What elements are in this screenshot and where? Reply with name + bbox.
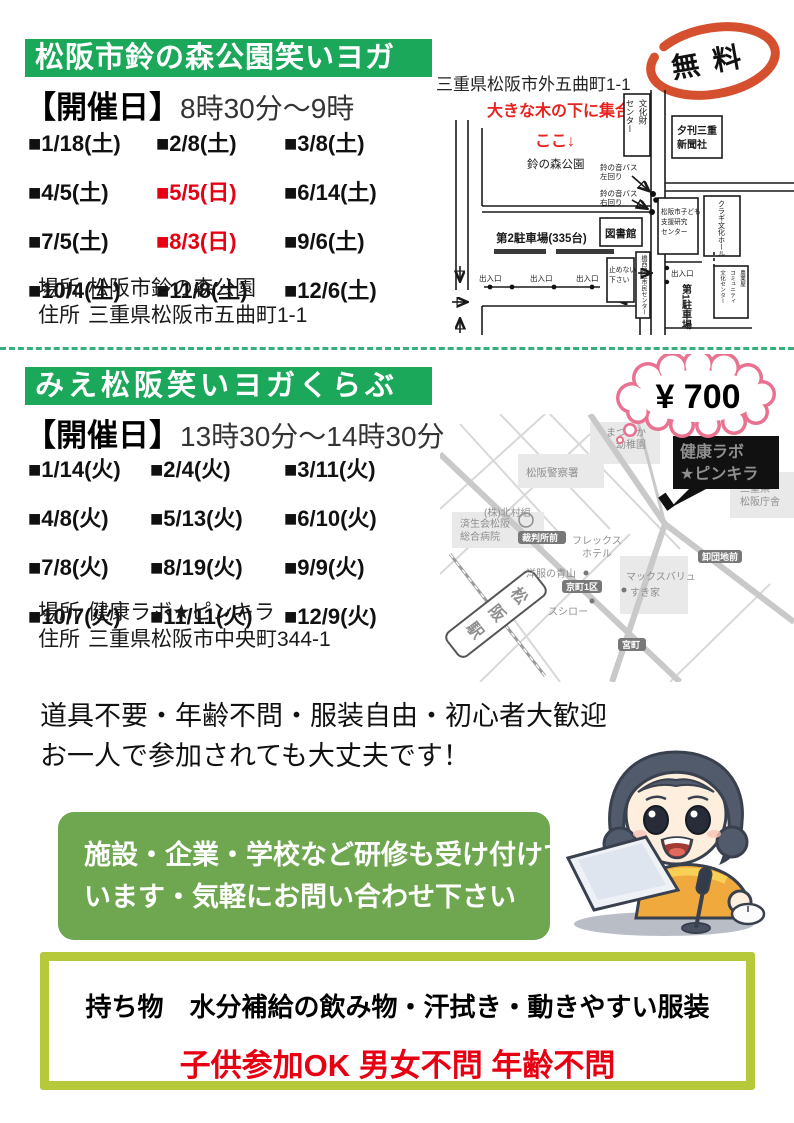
section1-place: 場所松阪市鈴の森公園 bbox=[38, 272, 256, 302]
schedule-label: 【開催日】 bbox=[25, 418, 180, 453]
gate-label: 出入口 bbox=[576, 273, 599, 283]
bus-left-label: 鈴の音バス bbox=[600, 162, 638, 172]
gate-dot bbox=[665, 280, 669, 284]
kodomo-label: センター bbox=[661, 227, 687, 236]
poi-dot bbox=[584, 571, 589, 576]
map1-park-label: 鈴の森公園 bbox=[527, 157, 585, 171]
bus-stop-dot bbox=[653, 197, 659, 203]
section2-schedule: 【開催日】13時30分～14時30分 bbox=[25, 410, 445, 455]
kitamura-label: (株)北村組 bbox=[484, 506, 531, 519]
newspaper-label: 夕刊三重 bbox=[677, 124, 717, 137]
event-date: ■7/5(土) bbox=[28, 224, 156, 256]
address-value: 三重県松阪市五曲町1-1 bbox=[88, 304, 307, 327]
hospital-label: 済生会松阪 bbox=[460, 517, 510, 530]
training-line2: います・気軽にお問い合わせ下さい bbox=[84, 876, 524, 918]
street bbox=[510, 614, 560, 682]
parking-strip bbox=[494, 249, 546, 254]
hotel-label: ホテル bbox=[582, 548, 612, 560]
poi-dot bbox=[590, 599, 595, 604]
fee-bubble: ¥ 700 bbox=[610, 354, 782, 446]
parking1-label: 第1駐車場 bbox=[680, 283, 692, 331]
section1-address: 住所三重県松阪市五曲町1-1 bbox=[38, 299, 307, 329]
map1-parking2-label: 第2駐車場(335台) bbox=[496, 231, 587, 245]
fee-bubble-text: ¥ 700 bbox=[655, 378, 740, 416]
bus-stop-dot bbox=[650, 191, 656, 197]
kodomo-label: 支援研究 bbox=[661, 217, 688, 226]
eye bbox=[644, 806, 668, 834]
event-date: ■1/14(火) bbox=[28, 452, 150, 484]
schedule-time: 13時30分～14時30分 bbox=[180, 421, 445, 452]
address-label: 住所 bbox=[38, 304, 80, 327]
bus-left-arrow bbox=[632, 176, 648, 190]
section2-place: 場所健康ラボ★ピンキラ bbox=[38, 596, 275, 626]
gate-dot bbox=[488, 285, 493, 290]
bring-items: 持ち物 水分補給の飲み物・汗拭き・動きやすい服装 bbox=[49, 987, 746, 1024]
eye bbox=[686, 806, 710, 834]
event-date: ■6/14(土) bbox=[284, 175, 428, 207]
sukiya-label: すき家 bbox=[630, 586, 660, 599]
notes-line2: お一人で参加されても大丈夫です！ bbox=[40, 736, 607, 776]
place-label: 場所 bbox=[38, 277, 80, 300]
bring-box: 持ち物 水分補給の飲み物・汗拭き・動きやすい服装 子供参加OK 男女不問 年齢不… bbox=[40, 952, 755, 1090]
bunkazai-label: センター bbox=[625, 99, 635, 133]
gate-label: 出入口 bbox=[530, 273, 553, 283]
newspaper-box bbox=[672, 116, 722, 158]
busstop-label: 裁判所前 bbox=[522, 532, 558, 543]
hotel-label: フレックス bbox=[572, 535, 622, 547]
hospital-label: 総合病院 bbox=[460, 530, 500, 543]
busstop-label: 卸団地前 bbox=[702, 551, 738, 562]
event-date: ■2/4(火) bbox=[150, 452, 284, 484]
bunkazai-label: 文化財 bbox=[638, 98, 648, 124]
venue-label: ★ピンキラ bbox=[680, 465, 758, 483]
bus-stop-dot bbox=[649, 209, 655, 215]
place-label: 場所 bbox=[38, 601, 80, 624]
section2-address: 住所三重県松阪市中央町344-1 bbox=[38, 623, 331, 653]
police-label: 松阪警察署 bbox=[526, 466, 579, 479]
event-date: ■3/11(火) bbox=[284, 452, 428, 484]
gate-dot bbox=[552, 285, 557, 290]
newspaper-label: 新聞社 bbox=[677, 138, 707, 151]
address-label: 住所 bbox=[38, 628, 80, 651]
sushiro-label: スシロー bbox=[548, 607, 588, 618]
bring-note: 子供参加OK 男女不問 年齢不問 bbox=[49, 1040, 746, 1085]
section1-title: 松阪市鈴の森公園笑いヨガ bbox=[25, 39, 432, 77]
aoyama-label: 洋服の青山 bbox=[526, 567, 576, 580]
schedule-label: 【開催日】 bbox=[25, 90, 180, 125]
event-date: ■9/6(土) bbox=[284, 224, 428, 256]
flyer-page: 松阪市鈴の森公園笑いヨガ 【開催日】8時30分～9時 ■1/18(土)■2/8(… bbox=[0, 0, 794, 1123]
notes-block: 道具不要・年齢不問・服装自由・初心者大歓迎 お一人で参加されても大丈夫です！ bbox=[40, 696, 607, 776]
nogyoya-label: コミュニティ bbox=[729, 270, 736, 304]
poi-dot bbox=[622, 588, 627, 593]
gate-dot bbox=[510, 285, 515, 290]
schedule-time: 8時30分～9時 bbox=[180, 93, 354, 124]
blush bbox=[707, 830, 721, 838]
library-label: 図書館 bbox=[605, 227, 637, 240]
pref-office-label: 松阪庁舎 bbox=[740, 495, 780, 508]
event-date: ■8/19(火) bbox=[150, 550, 284, 582]
place-value: 健康ラボ★ピンキラ bbox=[88, 601, 275, 624]
community-center-label: 橋西地区市民センター bbox=[640, 254, 647, 315]
event-date: ■6/10(火) bbox=[284, 501, 428, 533]
free-badge-text: 無料 bbox=[669, 39, 757, 84]
event-date: ■3/8(土) bbox=[284, 126, 428, 158]
event-date: ■4/5(土) bbox=[28, 175, 156, 207]
map1-meet-line1: 大きな木の下に集合！ bbox=[487, 101, 647, 120]
tongue bbox=[669, 848, 685, 856]
notes-line1: 道具不要・年齢不問・服装自由・初心者大歓迎 bbox=[40, 696, 607, 736]
event-date: ■1/18(土) bbox=[28, 126, 156, 158]
event-date: ■8/3(日) bbox=[156, 224, 284, 256]
bus-right-label: 鈴の音バス bbox=[600, 188, 638, 198]
place-value: 松阪市鈴の森公園 bbox=[88, 277, 256, 300]
event-date: ■5/13(火) bbox=[150, 501, 284, 533]
gate-dot bbox=[590, 285, 595, 290]
event-date: ■2/8(土) bbox=[156, 126, 284, 158]
section-divider bbox=[0, 347, 794, 350]
eye-highlight bbox=[691, 811, 698, 818]
gate-label: 出入口 bbox=[671, 268, 694, 278]
event-date: ■5/5(日) bbox=[156, 175, 284, 207]
address-value: 三重県松阪市中央町344-1 bbox=[88, 628, 331, 651]
gate-label: 出入口 bbox=[479, 273, 502, 283]
venue-pointer bbox=[670, 488, 708, 508]
nogyoya-label: 農業屋 bbox=[739, 269, 746, 288]
kodomo-box bbox=[658, 198, 698, 254]
event-date: ■7/8(火) bbox=[28, 550, 150, 582]
kuragi-label: クラギ文化ホール bbox=[718, 200, 727, 258]
bus-left-label: 左回り bbox=[600, 171, 623, 181]
training-line1: 施設・企業・学校など研修も受け付けて bbox=[84, 834, 524, 876]
maxvalu-label: マックスバリュ bbox=[626, 571, 696, 583]
city-map: 松 阪 駅 まつさか 幼稚園 松阪警察署 (株)北村組 三重県 松阪庁舎 済生会… bbox=[440, 414, 794, 682]
gate-dot bbox=[665, 266, 669, 270]
busstop-label: 宮町 bbox=[622, 639, 640, 650]
parking-strip bbox=[556, 249, 614, 254]
event-date: ■9/9(火) bbox=[284, 550, 428, 582]
event-date: ■4/8(火) bbox=[28, 501, 150, 533]
nogyoya-label: 文化センター bbox=[719, 269, 726, 304]
section2-title: みえ松阪笑いヨガくらぶ bbox=[25, 367, 432, 405]
bus-right-arrow bbox=[632, 200, 646, 208]
eye-highlight bbox=[649, 811, 656, 818]
map1-meet-line2: ここ↓ bbox=[535, 133, 575, 150]
bus-right-label: 右回り bbox=[600, 197, 623, 207]
hair-puff bbox=[717, 827, 747, 857]
kodomo-label: 松阪市子ども bbox=[661, 207, 701, 216]
park-map: 大きな木の下に集合！ ここ↓ 鈴の森公園 第2駐車場(335台) 出入口 出入口… bbox=[432, 90, 794, 335]
no-parking-label: 下さい bbox=[609, 276, 630, 284]
cartoon-woman-laptop bbox=[558, 740, 780, 940]
section1-schedule: 【開催日】8時30分～9時 bbox=[25, 82, 354, 127]
busstop-label: 京町1区 bbox=[566, 581, 598, 592]
training-box: 施設・企業・学校など研修も受け付けて います・気軽にお問い合わせ下さい bbox=[58, 812, 550, 940]
